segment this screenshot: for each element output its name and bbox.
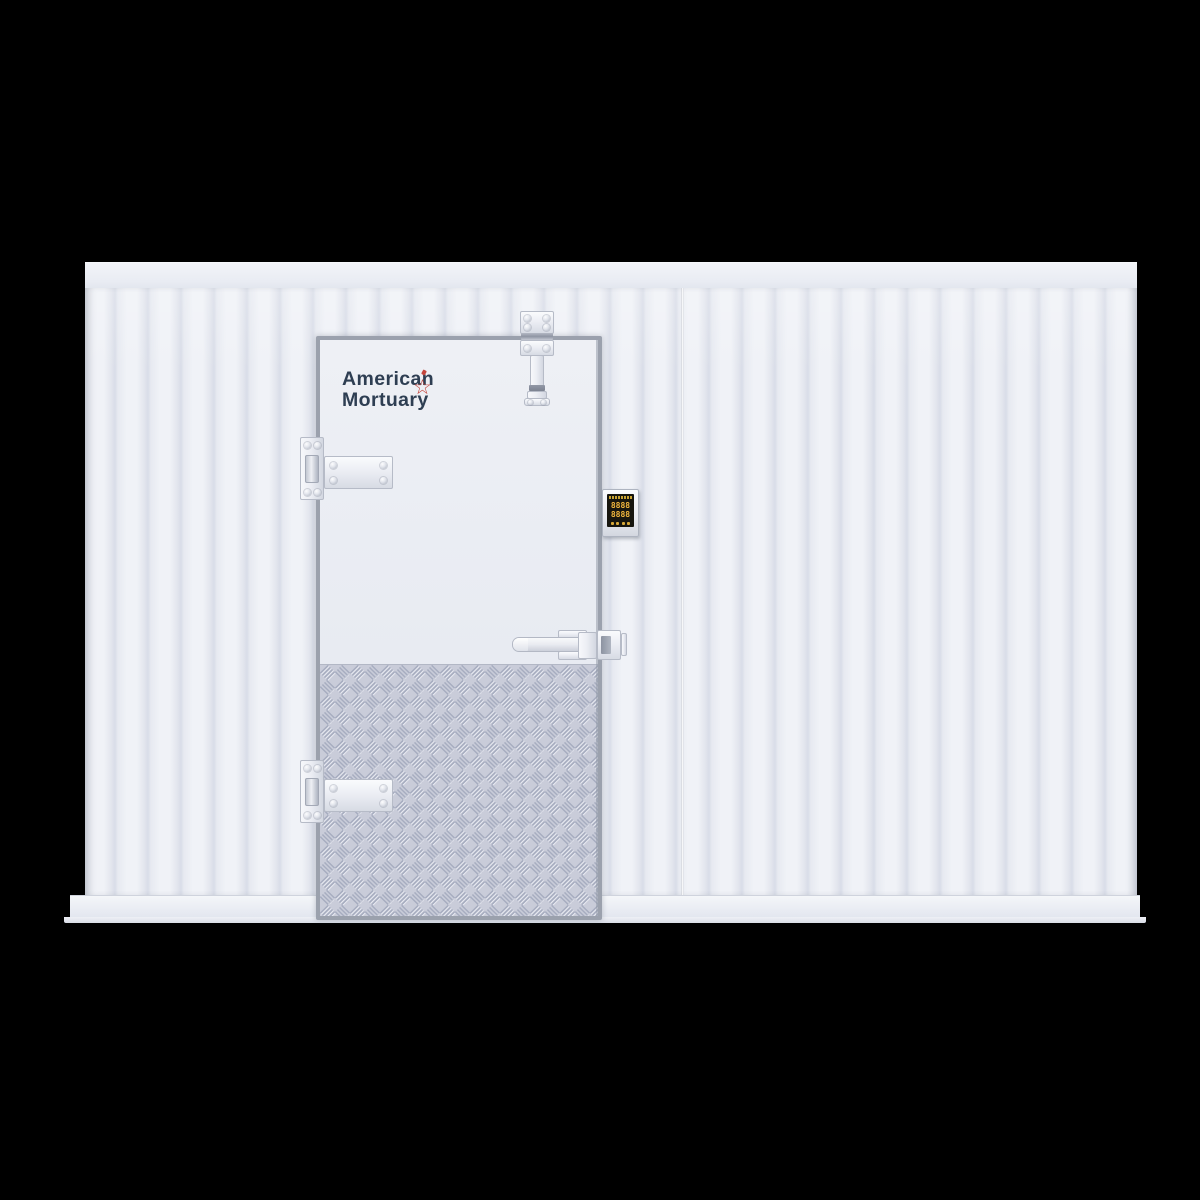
screw [304, 489, 311, 496]
closer-arm [530, 355, 544, 387]
screw [330, 462, 337, 469]
screw [314, 812, 321, 819]
controller-button [616, 522, 619, 525]
closer-mount-plate [520, 311, 554, 334]
closer-hinge-knuckle [521, 333, 553, 340]
screw [380, 785, 387, 792]
screw [314, 765, 321, 772]
screw [380, 477, 387, 484]
controller-label-strip [609, 496, 632, 499]
controller-buttons [611, 522, 630, 526]
screw [330, 800, 337, 807]
screw [528, 400, 533, 405]
temperature-controller: 8888 8888 [602, 489, 639, 537]
floor-sill [64, 917, 1146, 923]
latch-body [578, 632, 597, 659]
controller-button [622, 522, 625, 525]
latch-end-plate [621, 633, 627, 656]
corrugated-wall-panels [85, 288, 1137, 895]
screw [314, 489, 321, 496]
screw [330, 785, 337, 792]
screw [330, 477, 337, 484]
base-rail [70, 895, 1140, 919]
top-cap-rail [85, 262, 1137, 290]
screw [304, 812, 311, 819]
screw [543, 315, 550, 322]
controller-button [627, 522, 630, 525]
door-hinge-bottom [300, 760, 393, 823]
screw [524, 324, 531, 331]
controller-button [611, 522, 614, 525]
panel-seam [681, 288, 684, 895]
hinge-strap [324, 456, 393, 489]
product-render: American Mortuary ☆ [0, 0, 1200, 1200]
door-hinge-top [300, 437, 393, 500]
screw [541, 400, 546, 405]
screw [380, 462, 387, 469]
latch-keeper [601, 636, 611, 654]
screw [314, 442, 321, 449]
controller-display-row2: 8888 [607, 511, 634, 519]
closer-base-plate [524, 398, 550, 406]
screw [543, 345, 550, 352]
logo-star-icon: ☆ [413, 377, 432, 398]
hinge-pin [305, 778, 319, 806]
screw [543, 324, 550, 331]
controller-screen: 8888 8888 [607, 494, 634, 527]
closer-door-bracket [520, 340, 554, 356]
screw [524, 345, 531, 352]
screw [380, 800, 387, 807]
screw [524, 315, 531, 322]
screw [304, 765, 311, 772]
brand-logo: American Mortuary ☆ [342, 369, 434, 410]
hinge-pin [305, 455, 319, 483]
latch-handle-cap [513, 638, 528, 651]
screw [304, 442, 311, 449]
controller-display-row1: 8888 [607, 502, 634, 510]
hinge-strap [324, 779, 393, 812]
door-latch [512, 627, 628, 663]
